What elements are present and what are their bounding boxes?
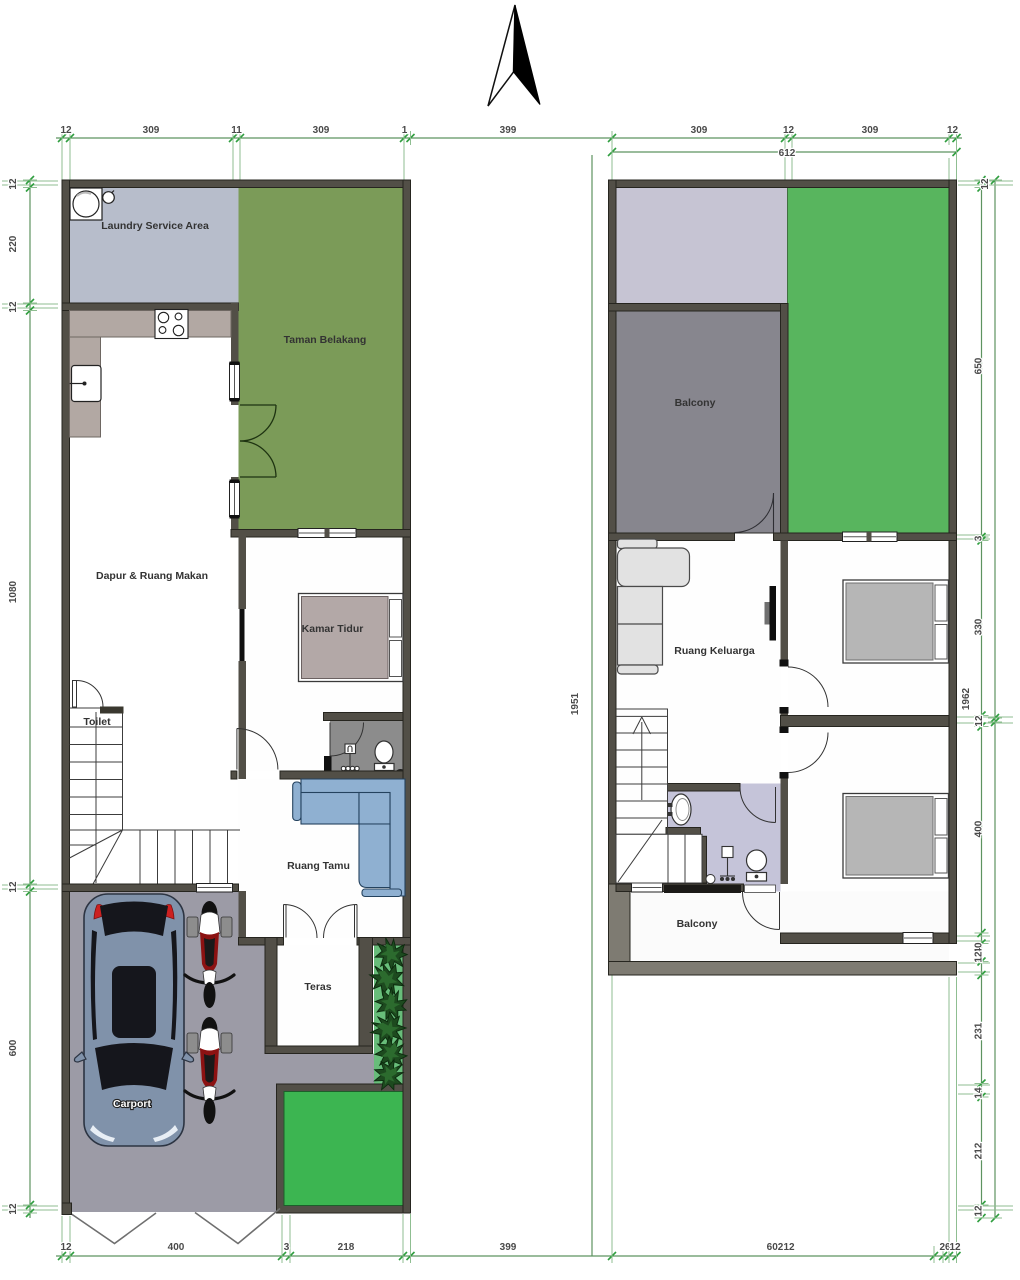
svg-text:399: 399 <box>500 1242 517 1253</box>
svg-text:231: 231 <box>974 1022 985 1039</box>
svg-text:12: 12 <box>947 125 959 136</box>
svg-text:1080: 1080 <box>8 580 19 603</box>
svg-text:309: 309 <box>862 125 879 136</box>
svg-text:212: 212 <box>974 1142 985 1159</box>
svg-text:11: 11 <box>231 125 242 136</box>
svg-text:218: 218 <box>338 1242 355 1253</box>
svg-text:600: 600 <box>8 1039 19 1056</box>
svg-text:12: 12 <box>980 178 991 190</box>
svg-text:12: 12 <box>783 1242 795 1253</box>
svg-text:12: 12 <box>974 1205 985 1217</box>
svg-text:650: 650 <box>974 357 985 374</box>
svg-text:Teras: Teras <box>304 981 331 993</box>
svg-text:1962: 1962 <box>961 687 972 710</box>
svg-text:12: 12 <box>8 178 19 190</box>
svg-text:400: 400 <box>168 1242 185 1253</box>
svg-text:12: 12 <box>60 125 72 136</box>
svg-text:Carport: Carport <box>113 1098 151 1110</box>
svg-text:Balcony: Balcony <box>677 918 718 930</box>
svg-text:309: 309 <box>691 125 708 136</box>
svg-text:12: 12 <box>974 951 985 963</box>
svg-text:309: 309 <box>313 125 330 136</box>
svg-text:220: 220 <box>8 235 19 252</box>
svg-text:Laundry Service Area: Laundry Service Area <box>101 220 209 232</box>
svg-text:12: 12 <box>8 1203 19 1215</box>
svg-text:12: 12 <box>783 125 795 136</box>
svg-text:12: 12 <box>8 301 19 313</box>
svg-text:Balcony: Balcony <box>675 397 716 409</box>
svg-text:12: 12 <box>949 1242 961 1253</box>
svg-text:Ruang Tamu: Ruang Tamu <box>287 860 350 872</box>
svg-text:399: 399 <box>500 125 517 136</box>
svg-text:14: 14 <box>974 1087 985 1099</box>
svg-text:Ruang Keluarga: Ruang Keluarga <box>674 645 755 657</box>
svg-text:400: 400 <box>974 820 985 837</box>
svg-text:Kamar Tidur: Kamar Tidur <box>302 623 364 635</box>
svg-text:12: 12 <box>974 715 985 727</box>
svg-text:1951: 1951 <box>570 692 581 715</box>
svg-text:12: 12 <box>8 881 19 893</box>
svg-text:602: 602 <box>767 1242 784 1253</box>
svg-text:1: 1 <box>402 125 408 136</box>
svg-text:12: 12 <box>60 1242 72 1253</box>
svg-text:309: 309 <box>143 125 160 136</box>
svg-text:330: 330 <box>974 618 985 635</box>
svg-text:612: 612 <box>779 148 796 159</box>
svg-text:Taman Belakang: Taman Belakang <box>284 334 367 346</box>
svg-text:Dapur & Ruang Makan: Dapur & Ruang Makan <box>96 570 208 582</box>
svg-text:Toilet: Toilet <box>83 716 111 728</box>
svg-text:3: 3 <box>974 535 985 541</box>
svg-text:3: 3 <box>284 1242 290 1253</box>
